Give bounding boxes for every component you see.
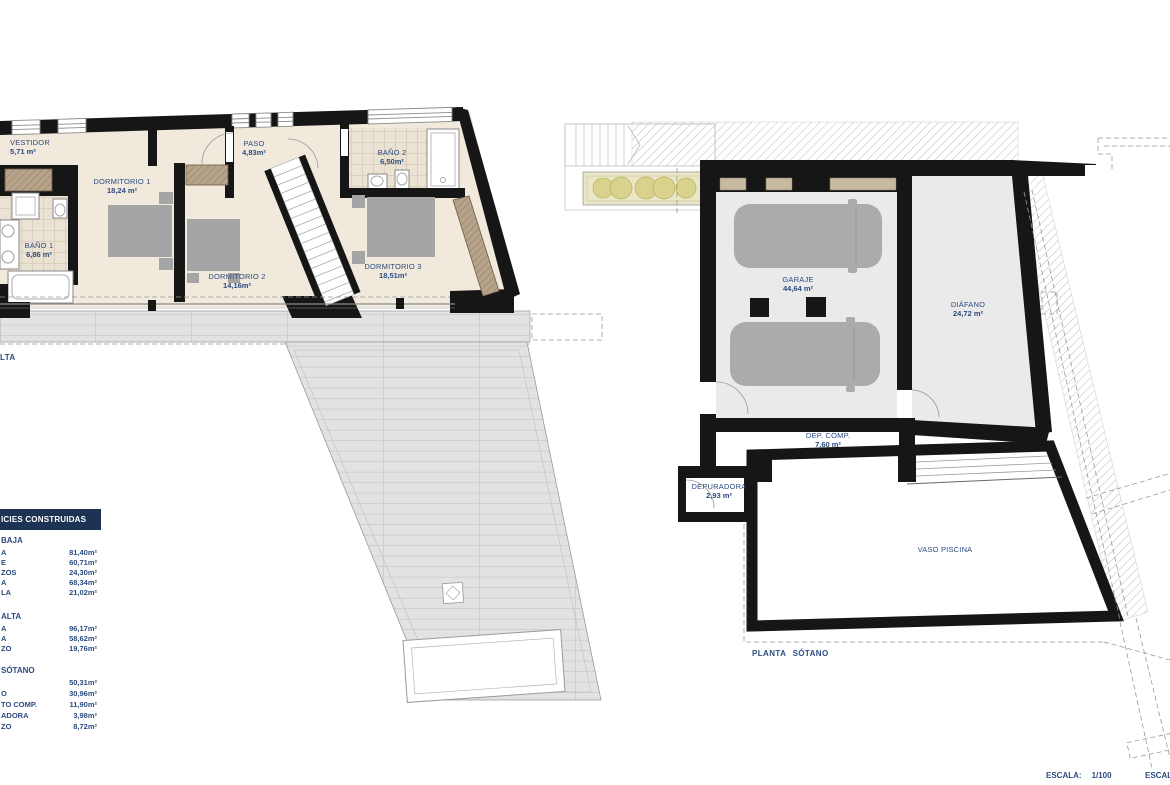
- table-row: LA 21,02m²: [1, 588, 97, 598]
- room-area: 24,72 m²: [953, 309, 983, 318]
- table-section-sotano: SÓTANO: [1, 666, 35, 675]
- floorplan-drawing: [0, 0, 1170, 785]
- skylight: [442, 582, 463, 603]
- surface-table-header: ICIES CONSTRUIDAS: [0, 509, 101, 530]
- table-row: A 58,62m²: [1, 634, 97, 644]
- room-area: 7,60 m²: [815, 440, 841, 449]
- room-name: DORMITORIO 3: [364, 262, 421, 271]
- table-row: E 60,71m²: [1, 558, 97, 568]
- scale-label-cut: ESCALA:: [1145, 771, 1170, 780]
- table-row: O 30,96m²: [1, 689, 97, 700]
- shower: [427, 129, 459, 190]
- room-name: BAÑO 2: [378, 148, 407, 157]
- room-name: DORMITORIO 1: [93, 177, 150, 186]
- room-area: 6,86 m²: [26, 250, 52, 259]
- room-area: 18,24 m²: [107, 186, 137, 195]
- room-label-vestidor: VESTIDOR 5,71 m²: [10, 138, 50, 156]
- room-name: BAÑO 1: [25, 241, 54, 250]
- wall-vestidor: [148, 130, 157, 166]
- room-name: GARAJE: [782, 275, 813, 284]
- room-name: DORMITORIO 2: [208, 272, 265, 281]
- table-rows-alta: A 96,17m² A 58,62m² ZO 19,76m²: [1, 624, 97, 654]
- terrace-overhang-dashed: [532, 314, 602, 340]
- room-label-depuradora: DEPURADORA 2,93 m²: [692, 482, 747, 500]
- wall-dorm1-dorm2: [174, 163, 185, 302]
- terrace-pool: [403, 630, 565, 703]
- table-row: ZOS 24,30m²: [1, 568, 97, 578]
- table-row: 50,31m²: [1, 678, 97, 689]
- room-name: DEPURADORA: [692, 482, 747, 491]
- bed-dormitorio2: [187, 219, 240, 271]
- room-area: 14,16m²: [223, 281, 251, 290]
- room-area: 2,93 m²: [706, 491, 732, 500]
- wardrobe-dormitorio2: [186, 165, 228, 185]
- room-name: VESTIDOR: [10, 138, 50, 147]
- car-1: [734, 204, 882, 268]
- room-label-dormitorio3: DORMITORIO 3 18,51m²: [364, 262, 421, 280]
- room-label-vaso-piscina: VASO PISCINA: [918, 545, 973, 554]
- table-section-baja: BAJA: [1, 536, 23, 545]
- room-area: 6,50m²: [380, 157, 404, 166]
- plan-title-alta: LTA: [0, 353, 16, 362]
- room-name: VASO PISCINA: [918, 545, 973, 554]
- table-row: A 81,40m²: [1, 548, 97, 558]
- table-section-alta: ALTA: [1, 612, 21, 621]
- car-2: [730, 322, 880, 386]
- plan-title-sotano: PLANTA SÓTANO: [752, 649, 829, 658]
- pool-vaso-piscina: [748, 446, 1116, 626]
- room-label-paso: PASO 4,83m²: [242, 139, 266, 157]
- table-rows-sotano: 50,31m² O 30,96m² TO COMP. 11,90m² ADORA…: [1, 678, 97, 733]
- bed-dormitorio3: [367, 197, 435, 257]
- room-name: DIÁFANO: [951, 300, 985, 309]
- pillar: [806, 297, 826, 317]
- floorplan-sheet: VESTIDOR 5,71 m² BAÑO 1 6,86 m² DORMITOR…: [0, 0, 1170, 785]
- room-label-bano1: BAÑO 1 6,86 m²: [25, 241, 54, 259]
- table-rows-baja: A 81,40m² E 60,71m² ZOS 24,30m² A 68,34m…: [1, 548, 97, 598]
- room-label-dormitorio1: DORMITORIO 1 18,24 m²: [93, 177, 150, 195]
- bathtub: [8, 271, 73, 303]
- room-area: 4,83m²: [242, 148, 266, 157]
- bed-dormitorio1: [108, 205, 172, 257]
- scale-label: ESCALA:1/100: [1046, 771, 1112, 780]
- planter: [565, 166, 712, 215]
- wardrobe-vestidor: [5, 169, 52, 191]
- surface-table-header-text: ICIES CONSTRUIDAS: [0, 515, 86, 524]
- pillar: [750, 298, 769, 317]
- room-label-garaje: GARAJE 44,64 m²: [782, 275, 813, 293]
- room-name: DEP. COMP.: [806, 431, 850, 440]
- room-area: 44,64 m²: [783, 284, 813, 293]
- table-row: TO COMP. 11,90m²: [1, 700, 97, 711]
- room-label-dormitorio2: DORMITORIO 2 14,16m²: [208, 272, 265, 290]
- table-row: A 68,34m²: [1, 578, 97, 588]
- table-row: A 96,17m²: [1, 624, 97, 634]
- planta-sotano-plan: [565, 122, 1170, 768]
- room-area: 18,51m²: [379, 271, 407, 280]
- table-row: ZO 8,72m²: [1, 722, 97, 733]
- room-area: 5,71 m²: [10, 147, 36, 156]
- room-label-dep-comp: DEP. COMP. 7,60 m²: [806, 431, 850, 449]
- room-name: PASO: [243, 139, 264, 148]
- terrace-strip: [0, 311, 530, 342]
- table-row: ADORA 3,98m²: [1, 711, 97, 722]
- room-label-bano2: BAÑO 2 6,50m²: [378, 148, 407, 166]
- room-label-diafano: DIÁFANO 24,72 m²: [951, 300, 985, 318]
- table-row: ZO 19,76m²: [1, 644, 97, 654]
